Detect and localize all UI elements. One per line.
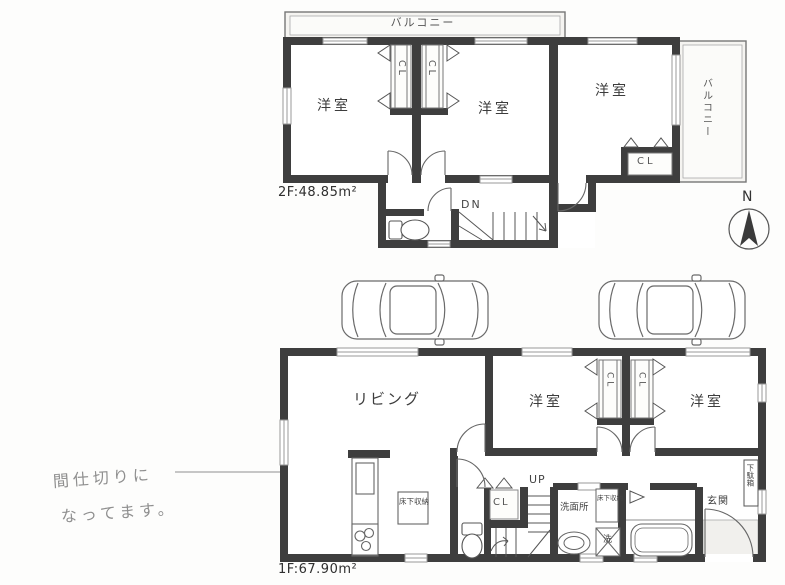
floorplan-linework xyxy=(0,0,785,585)
entrance-label: 玄関 xyxy=(707,497,729,508)
floor2-toilet xyxy=(389,220,429,240)
floor2-balcony-top-label: バルコニー xyxy=(363,17,483,29)
floor1-plan xyxy=(280,348,766,562)
car-right xyxy=(599,275,745,345)
floor2-room-middle-label: 洋室 xyxy=(478,102,512,117)
floor2-closet3-label: CL xyxy=(637,157,656,168)
floor1-closet2-label: CL xyxy=(636,372,645,389)
floor1-closet1-label: CL xyxy=(604,372,613,389)
floor2-balcony-right-label: バルコニー xyxy=(700,78,711,138)
floor1-hall-closet-label: CL xyxy=(493,498,510,509)
laundry-label: 洗 xyxy=(603,536,612,545)
floor2-plan xyxy=(283,12,746,248)
floor2-stair-direction-label: DN xyxy=(461,199,482,211)
living-room-label: リビング xyxy=(353,392,421,408)
floor1-room-right-label: 洋室 xyxy=(690,395,724,410)
floor2-area-label: 2F:48.85m² xyxy=(278,186,357,200)
floor2-closet2-label: CL xyxy=(426,60,436,78)
bathtub xyxy=(626,520,695,556)
compass xyxy=(729,209,769,249)
floor2-balcony-right xyxy=(679,41,746,182)
floor2-room-right-label: 洋室 xyxy=(595,84,629,99)
washroom-label: 洗面所 xyxy=(560,503,589,513)
shoe-cabinet-label: 下駄箱 xyxy=(746,464,754,487)
floor1-toilet xyxy=(462,523,482,558)
floorplan-scan: バルコニー バルコニー 洋室 洋室 洋室 CL CL CL DN 2F:48.8… xyxy=(0,0,785,585)
floor1-room-middle-label: 洋室 xyxy=(529,395,563,410)
kitchen-counter xyxy=(352,458,378,556)
floor2-closet1-label: CL xyxy=(396,60,406,78)
underfloor-storage-wash-label: 床下収納 xyxy=(597,495,617,502)
floor1-area-label: 1F:67.90m² xyxy=(278,563,357,577)
washbasin xyxy=(558,532,590,554)
floor1-stair-direction-label: UP xyxy=(529,474,546,486)
underfloor-storage-living-label: 床下収納 xyxy=(399,498,427,507)
floor2-room-left-label: 洋室 xyxy=(317,99,351,114)
car-left xyxy=(342,275,488,345)
compass-north-label: N xyxy=(742,190,752,205)
